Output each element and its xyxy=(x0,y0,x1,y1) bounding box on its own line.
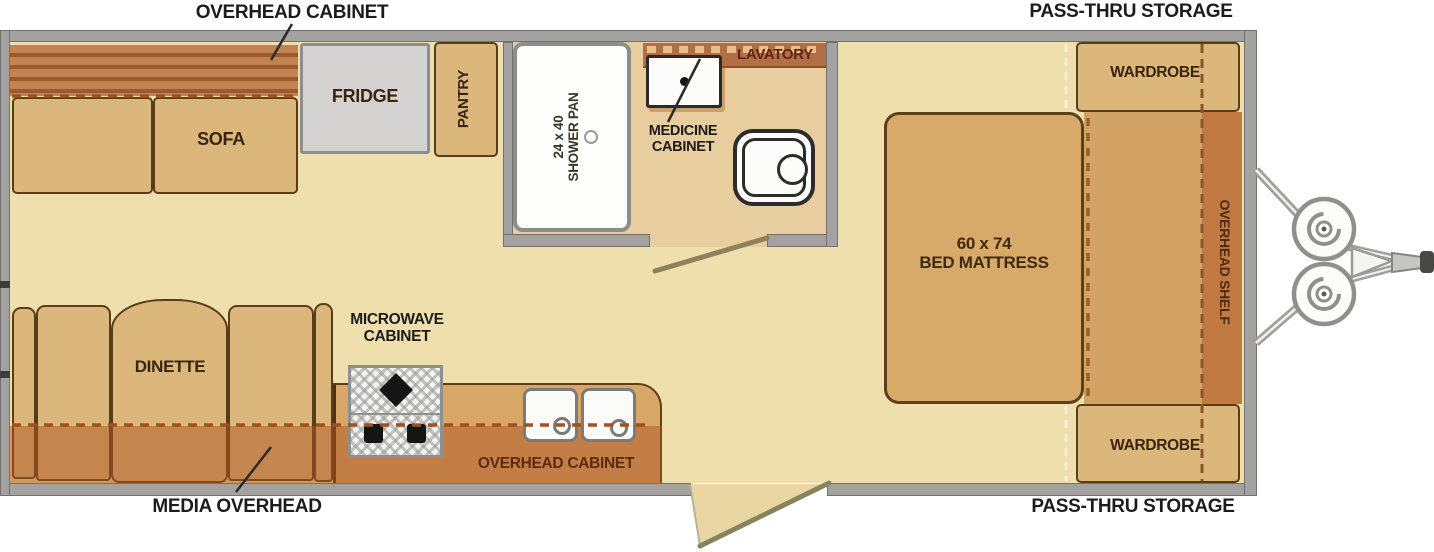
wall-bottom-left xyxy=(4,483,691,496)
label-bed-mattress: 60 x 74 BED MATTRESS xyxy=(884,234,1084,272)
lavatory-drain-icon xyxy=(680,77,689,86)
label-sofa: SOFA xyxy=(189,129,253,149)
label-shower-name: SHOWER PAN xyxy=(566,62,581,212)
label-microwave-cabinet-line2: CABINET xyxy=(330,328,464,345)
toilet xyxy=(733,129,815,206)
stove-burner-left-icon xyxy=(364,424,383,443)
hitch-bar-lower xyxy=(1256,291,1316,343)
entry-door-leaf xyxy=(700,483,829,546)
label-wardrobe-bottom: WARDROBE xyxy=(1076,437,1234,454)
wall-left xyxy=(0,30,10,496)
propane-tank-top-hub xyxy=(1317,222,1331,236)
label-microwave-cabinet: MICROWAVE CABINET xyxy=(330,311,464,346)
label-media-overhead: MEDIA OVERHEAD xyxy=(138,496,336,517)
label-pass-thru-storage-bottom: PASS-THRU STORAGE xyxy=(1018,496,1248,517)
label-overhead-cabinet-counter: OVERHEAD CABINET xyxy=(450,455,662,472)
wall-bath-bottom-a xyxy=(503,234,650,247)
wall-tick-upper xyxy=(0,281,10,288)
propane-tank-bottom-valve xyxy=(1322,292,1327,297)
hitch-bar-upper xyxy=(1256,170,1316,234)
label-lavatory: LAVATORY xyxy=(725,47,825,64)
stove-burner-right-icon xyxy=(407,424,426,443)
label-bed-size: 60 x 74 xyxy=(884,234,1084,253)
hitch-assembly xyxy=(1256,170,1434,343)
propane-tank-top-ring xyxy=(1309,214,1339,244)
label-medicine-cabinet: MEDICINE CABINET xyxy=(627,123,739,155)
rv-floorplan: OVERHEAD CABINET PASS-THRU STORAGE PASS-… xyxy=(0,0,1434,552)
hitch-bar-upper-core xyxy=(1256,170,1316,234)
lavatory-sink xyxy=(646,55,722,108)
label-dinette: DINETTE xyxy=(127,357,213,376)
label-microwave-cabinet-line1: MICROWAVE xyxy=(330,311,464,328)
entry-door-arc-edge xyxy=(690,484,700,546)
hitch-frame-upper xyxy=(1330,243,1404,260)
wall-bath-left xyxy=(503,42,513,247)
sink-basin-left xyxy=(523,388,578,442)
sink-faucet-left-icon xyxy=(553,417,571,435)
wall-bath-bottom-b xyxy=(767,234,827,247)
label-fridge: FRIDGE xyxy=(305,86,425,106)
propane-tank-bottom-icon xyxy=(1294,264,1354,324)
media-overhead-band xyxy=(10,426,333,483)
hitch-coupler-body xyxy=(1392,253,1422,272)
label-overhead-shelf: OVERHEAD SHELF xyxy=(1212,187,1232,337)
label-pantry: PANTRY xyxy=(456,49,476,149)
wall-top xyxy=(4,30,1256,42)
propane-tank-top-icon xyxy=(1294,199,1354,259)
stove-cooktop xyxy=(348,365,443,458)
stove-upper-grate xyxy=(351,368,440,415)
label-medicine-cabinet-line1: MEDICINE xyxy=(627,123,739,139)
label-bed-name: BED MATTRESS xyxy=(884,253,1084,272)
wall-bath-right xyxy=(826,42,838,247)
bed-platform xyxy=(1084,112,1202,404)
label-pass-thru-storage-top: PASS-THRU STORAGE xyxy=(1016,1,1246,22)
entry-door-swing xyxy=(690,484,829,546)
label-wardrobe-top: WARDROBE xyxy=(1076,64,1234,81)
wall-bottom-right xyxy=(827,483,1257,496)
hitch-frame-lower xyxy=(1330,265,1404,285)
wall-tick-lower xyxy=(0,371,10,378)
propane-tank-top-valve xyxy=(1322,227,1327,232)
wall-right xyxy=(1244,30,1257,496)
sink-basin-right xyxy=(581,388,636,442)
propane-tank-bottom-ring xyxy=(1309,279,1339,309)
label-overhead-cabinet-top: OVERHEAD CABINET xyxy=(182,2,402,23)
stove-burner-large-icon xyxy=(379,373,413,407)
toilet-flush-icon xyxy=(777,154,808,185)
hitch-bar-lower-core xyxy=(1256,291,1316,343)
propane-tank-bottom-hub xyxy=(1317,287,1331,301)
hitch-frame-upper-core xyxy=(1330,243,1404,260)
sofa-overhead-cabinet xyxy=(10,45,298,96)
label-shower-size: 24 x 40 xyxy=(551,62,566,212)
sink-faucet-right-icon xyxy=(610,419,628,437)
hitch-wedge xyxy=(1352,248,1392,277)
stove-lower-grate xyxy=(351,415,440,455)
label-shower-pan: 24 x 40 SHOWER PAN xyxy=(551,62,589,212)
label-medicine-cabinet-line2: CABINET xyxy=(627,139,739,155)
sofa-section-left xyxy=(12,97,153,194)
hitch-coupler-tip xyxy=(1420,251,1434,273)
hitch-frame-lower-core xyxy=(1330,265,1404,285)
